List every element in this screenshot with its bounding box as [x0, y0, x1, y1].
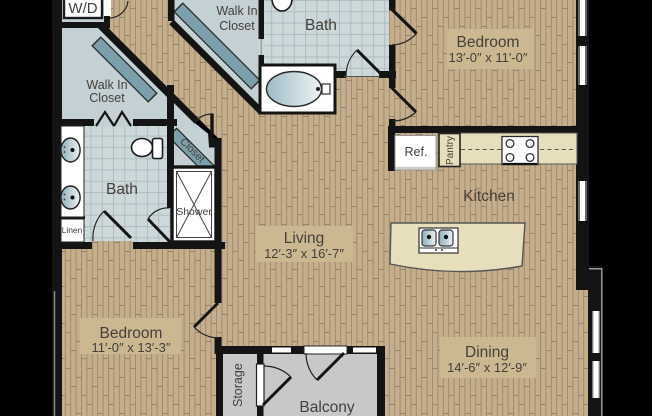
- svg-text:Walk In: Walk In: [216, 4, 257, 18]
- svg-text:Closet: Closet: [219, 19, 255, 33]
- svg-text:11′-0″ x 13′-3″: 11′-0″ x 13′-3″: [92, 340, 171, 355]
- svg-text:Bath: Bath: [106, 181, 138, 198]
- svg-text:Balcony: Balcony: [299, 399, 354, 416]
- svg-text:Ref.: Ref.: [405, 145, 428, 159]
- svg-text:Walk In: Walk In: [86, 78, 127, 92]
- svg-text:Linen: Linen: [62, 225, 83, 235]
- svg-text:Kitchen: Kitchen: [463, 188, 515, 205]
- svg-text:12′-3″ x 16′-7″: 12′-3″ x 16′-7″: [264, 246, 344, 261]
- svg-text:Storage: Storage: [231, 363, 245, 407]
- svg-text:Living: Living: [284, 230, 325, 247]
- svg-text:Pantry: Pantry: [445, 136, 456, 165]
- svg-text:13′-0″ x 11′-0″: 13′-0″ x 11′-0″: [449, 50, 528, 65]
- svg-text:Shower: Shower: [176, 206, 212, 218]
- svg-text:Closet: Closet: [89, 91, 125, 105]
- svg-text:14′-6″ x 12′-9″: 14′-6″ x 12′-9″: [447, 360, 527, 375]
- svg-text:W/D: W/D: [68, 0, 97, 17]
- svg-text:Dining: Dining: [465, 344, 509, 361]
- svg-text:Bedroom: Bedroom: [457, 34, 520, 51]
- svg-text:Bath: Bath: [305, 17, 337, 34]
